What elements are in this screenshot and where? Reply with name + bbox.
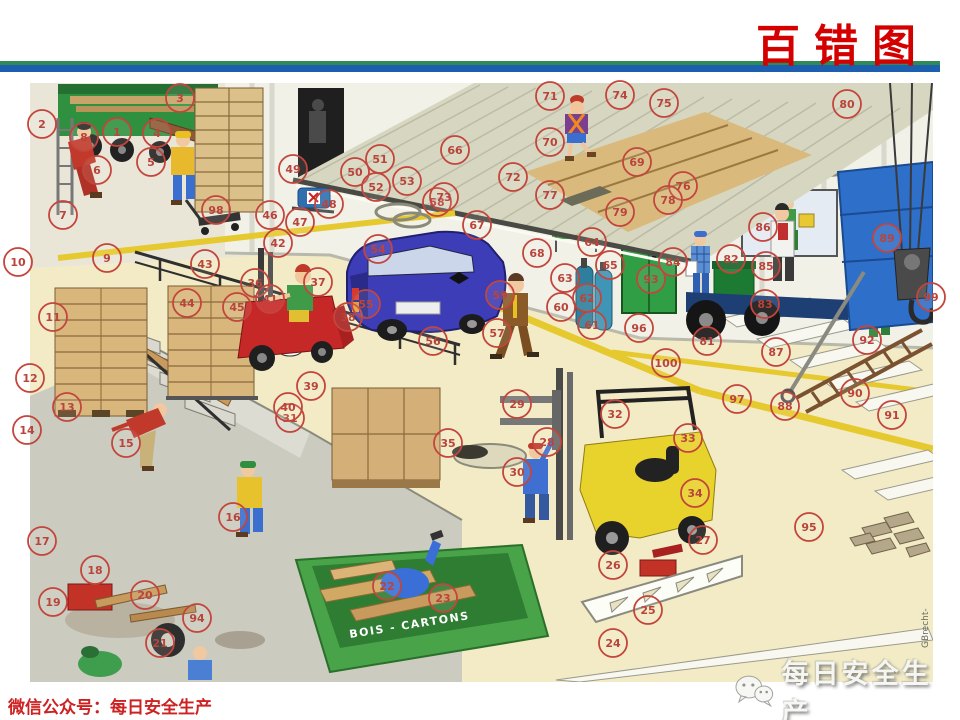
- error-marker-number: 87: [768, 346, 783, 359]
- error-marker-number: 3: [176, 92, 184, 105]
- safety-errors-illustration: BOIS - CARTONS: [0, 0, 960, 720]
- error-marker-number: 7: [59, 209, 67, 222]
- error-marker-number: 82: [723, 253, 738, 266]
- error-marker-number: 24: [605, 637, 621, 650]
- error-marker-number: 62: [579, 292, 594, 305]
- error-marker-number: 22: [379, 580, 394, 593]
- slide-title: 百错图: [756, 10, 930, 74]
- error-marker-number: 20: [137, 589, 153, 602]
- wechat-caption: 微信公众号：每日安全生产: [8, 693, 212, 718]
- error-marker-number: 49: [285, 163, 300, 176]
- error-marker-number: 28: [539, 436, 554, 449]
- error-marker-number: 48: [321, 198, 336, 211]
- error-marker-number: 30: [509, 466, 525, 479]
- error-marker-number: 79: [612, 206, 627, 219]
- error-marker-number: 50: [347, 166, 363, 179]
- error-marker-number: 81: [699, 335, 714, 348]
- error-marker-number: 38: [340, 311, 355, 324]
- error-marker-number: 10: [10, 256, 26, 269]
- error-marker-number: 40: [280, 401, 296, 414]
- error-marker-number: 41: [262, 293, 277, 306]
- error-marker-number: 60: [553, 301, 569, 314]
- error-marker-number: 35: [440, 437, 455, 450]
- error-marker-number: 46: [262, 209, 278, 222]
- error-marker-number: 72: [505, 171, 520, 184]
- error-marker-number: 15: [118, 437, 133, 450]
- error-marker-number: 16: [225, 511, 241, 524]
- error-marker-number: 54: [370, 243, 386, 256]
- error-marker-number: 67: [469, 219, 484, 232]
- error-marker-number: 52: [368, 181, 383, 194]
- error-marker-number: 19: [45, 596, 60, 609]
- error-marker-number: 18: [87, 564, 102, 577]
- error-marker-number: 33: [680, 432, 695, 445]
- error-marker-number: 34: [687, 487, 703, 500]
- error-marker-number: 73: [436, 191, 451, 204]
- error-marker-number: 9: [103, 252, 111, 265]
- error-marker-number: 74: [612, 89, 628, 102]
- watermark-text: 每日安全生产: [782, 652, 960, 720]
- error-marker-number: 88: [777, 400, 792, 413]
- error-marker-number: 27: [695, 534, 710, 547]
- error-marker-number: 11: [45, 311, 60, 324]
- error-marker-number: 96: [631, 322, 647, 335]
- error-marker-number: 13: [59, 401, 74, 414]
- artist-signature: GBrecht-: [921, 608, 931, 648]
- error-marker-number: 89: [879, 232, 894, 245]
- error-marker-number: 42: [270, 237, 285, 250]
- error-marker-number: 84: [665, 256, 681, 269]
- error-marker-number: 59: [492, 289, 507, 302]
- error-marker-number: 71: [542, 90, 557, 103]
- error-marker-number: 39: [303, 380, 318, 393]
- error-marker-number: 4: [153, 127, 161, 140]
- error-marker-number: 78: [660, 194, 675, 207]
- error-marker-number: 32: [607, 408, 622, 421]
- error-marker-number: 14: [19, 424, 35, 437]
- error-marker-number: 61: [584, 319, 599, 332]
- error-marker-number: 94: [189, 612, 205, 625]
- error-marker-number: 64: [584, 236, 600, 249]
- error-marker-number: 43: [197, 258, 212, 271]
- error-marker-number: 25: [640, 604, 655, 617]
- error-marker-number: 93: [643, 273, 658, 286]
- error-marker-number: 70: [542, 136, 558, 149]
- error-marker-number: 65: [602, 259, 617, 272]
- error-marker-number: 66: [447, 144, 463, 157]
- error-marker-number: 55: [358, 298, 373, 311]
- pallet-stack-top: [195, 88, 263, 212]
- error-marker-number: 44: [179, 297, 195, 310]
- error-marker-number: 80: [839, 98, 855, 111]
- error-marker-number: 69: [629, 156, 644, 169]
- error-marker-number: 85: [758, 260, 773, 273]
- error-marker-number: 23: [435, 592, 450, 605]
- error-marker-number: 83: [757, 298, 772, 311]
- error-marker-number: 29: [509, 398, 524, 411]
- error-marker-number: 26: [605, 559, 621, 572]
- error-marker-number: 21: [152, 637, 167, 650]
- box-stack-c: [332, 388, 440, 488]
- error-marker-number: 95: [801, 521, 816, 534]
- error-marker-number: 68: [529, 247, 544, 260]
- error-marker-number: 6: [93, 164, 101, 177]
- error-marker-number: 51: [372, 153, 387, 166]
- error-marker-number: 2: [38, 118, 46, 131]
- error-marker-number: 5: [147, 156, 155, 169]
- error-marker-number: 47: [292, 216, 307, 229]
- slide: 百错图: [0, 0, 960, 720]
- error-marker-number: 37: [310, 276, 325, 289]
- error-marker-number: 53: [399, 175, 414, 188]
- error-marker-number: 97: [729, 393, 744, 406]
- error-marker-number: 92: [859, 334, 874, 347]
- error-marker-number: 8: [80, 131, 88, 144]
- error-marker-number: 45: [229, 301, 244, 314]
- error-marker-number: 86: [755, 221, 771, 234]
- error-marker-number: 1: [113, 126, 121, 139]
- error-marker-number: 99: [923, 291, 938, 304]
- watermark: 每日安全生产: [733, 652, 960, 720]
- error-marker-number: 91: [884, 409, 899, 422]
- error-marker-number: 100: [655, 357, 678, 370]
- error-marker-number: 57: [489, 327, 504, 340]
- error-marker-number: 77: [542, 189, 557, 202]
- error-marker-number: 90: [847, 387, 863, 400]
- error-marker-number: 17: [34, 535, 49, 548]
- error-marker-number: 63: [557, 272, 572, 285]
- wechat-logo-icon: [733, 674, 775, 708]
- error-marker-number: 75: [656, 97, 671, 110]
- error-marker-number: 56: [425, 335, 441, 348]
- error-marker-number: 98: [208, 204, 223, 217]
- error-marker-number: 12: [22, 372, 37, 385]
